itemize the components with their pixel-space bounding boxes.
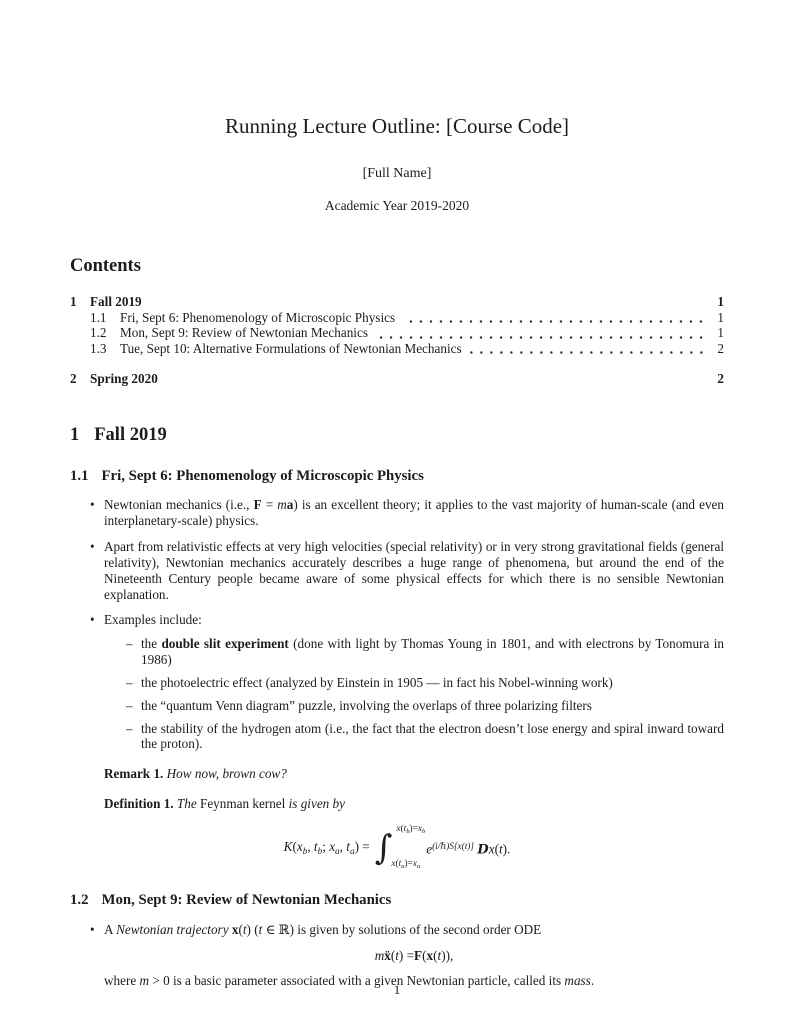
dash-icon: – bbox=[126, 675, 141, 691]
feynman-kernel-equation: K(xb, tb; xa, ta) = ∫ x(tb)=xb x(ta)=xa … bbox=[70, 824, 724, 871]
list-item: – the photoelectric effect (analyzed by … bbox=[126, 675, 724, 691]
subsection-title: Fri, Sept 6: Phenomenology of Microscopi… bbox=[102, 468, 424, 484]
toc-entry-1-3: 1.3 Tue, Sept 10: Alternative Formulatio… bbox=[90, 341, 724, 356]
subsection-number: 1.1 bbox=[70, 468, 89, 484]
dash-icon: – bbox=[126, 721, 141, 753]
subsection-heading-1-1: 1.1Fri, Sept 6: Phenomenology of Microsc… bbox=[70, 468, 724, 486]
toc-entry-number: 2 bbox=[70, 371, 90, 386]
toc-entry-page: 2 bbox=[714, 371, 724, 386]
integral-limits: x(tb)=xb x(ta)=xa bbox=[393, 824, 422, 871]
list-item: • Examples include: – the double slit ex… bbox=[70, 612, 724, 752]
dash-item-text: the photoelectric effect (analyzed by Ei… bbox=[141, 675, 724, 691]
dash-sublist: – the double slit experiment (done with … bbox=[126, 636, 724, 752]
toc-entry-number: 1.3 bbox=[90, 341, 120, 356]
bullet-text-lead: Examples include: bbox=[104, 612, 724, 628]
dash-icon: – bbox=[126, 698, 141, 714]
document-title: Running Lecture Outline: [Course Code] bbox=[70, 114, 724, 139]
document-author: [Full Name] bbox=[70, 166, 724, 183]
toc-entry-title: Spring 2020 bbox=[90, 371, 158, 386]
integral-upper-limit: x(tb)=xb bbox=[396, 824, 425, 836]
bullet-text: Examples include: – the double slit expe… bbox=[104, 612, 724, 752]
remark-paragraph: Remark 1. How now, brown cow? bbox=[104, 766, 724, 782]
section-number: 1 bbox=[70, 425, 79, 445]
document-page: Running Lecture Outline: [Course Code] [… bbox=[0, 0, 794, 1028]
bullet-list-1-1: • Newtonian mechanics (i.e., F = ma) is … bbox=[70, 497, 724, 752]
toc-leader-dots bbox=[470, 351, 706, 354]
bullet-icon: • bbox=[90, 612, 104, 752]
contents-heading: Contents bbox=[70, 255, 724, 277]
toc-entry-number: 1.1 bbox=[90, 310, 120, 325]
bullet-list-1-2: • A Newtonian trajectory x(t) (t ∈ ℝ) is… bbox=[70, 922, 724, 990]
bullet-icon: • bbox=[90, 539, 104, 602]
subsection-number: 1.2 bbox=[70, 892, 89, 908]
bullet-text: Apart from relativistic effects at very … bbox=[104, 539, 724, 602]
toc-leader bbox=[166, 381, 706, 384]
list-item: – the stability of the hydrogen atom (i.… bbox=[126, 721, 724, 753]
toc-leader-dots bbox=[403, 320, 706, 323]
list-item: • A Newtonian trajectory x(t) (t ∈ ℝ) is… bbox=[70, 922, 724, 990]
integral-icon: ∫ bbox=[375, 831, 393, 865]
section-heading-fall-2019: 1Fall 2019 bbox=[70, 424, 724, 446]
contents-list: 1 Fall 2019 1 1.1 Fri, Sept 6: Phenomeno… bbox=[70, 294, 724, 386]
toc-entry-title: Tue, Sept 10: Alternative Formulations o… bbox=[120, 341, 462, 356]
toc-entry-title: Fall 2019 bbox=[90, 294, 142, 309]
integral-lower-limit: x(ta)=xa bbox=[391, 859, 420, 871]
bullet-icon: • bbox=[90, 497, 104, 529]
dash-icon: – bbox=[126, 636, 141, 668]
table-of-contents: Contents 1 Fall 2019 1 1.1 Fri, Sept 6: … bbox=[70, 255, 724, 386]
toc-entry-number: 1 bbox=[70, 294, 90, 309]
newton-ode-equation: m ẍ(t) = F(x(t)), bbox=[104, 948, 724, 964]
equation-lhs: K(xb, tb; xa, ta) = bbox=[284, 839, 370, 857]
bullet-text: Newtonian mechanics (i.e., F = ma) is an… bbox=[104, 497, 724, 529]
bullet-text: A Newtonian trajectory x(t) (t ∈ ℝ) is g… bbox=[104, 922, 724, 990]
toc-leader-dots bbox=[376, 336, 706, 339]
list-item: • Apart from relativistic effects at ver… bbox=[70, 539, 724, 602]
equation-integrand: e(i/ℏ)S[x(t)] Dx(t). bbox=[426, 841, 510, 858]
bullet-icon: • bbox=[90, 922, 104, 990]
toc-entry-number: 1.2 bbox=[90, 325, 120, 340]
page-footer: 1 bbox=[0, 982, 794, 998]
toc-entry-page: 1 bbox=[714, 294, 724, 309]
dash-item-text: the stability of the hydrogen atom (i.e.… bbox=[141, 721, 724, 753]
toc-entry-page: 2 bbox=[714, 341, 724, 356]
dash-item-text: the double slit experiment (done with li… bbox=[141, 636, 724, 668]
list-item: – the “quantum Venn diagram” puzzle, inv… bbox=[126, 698, 724, 714]
page-number: 1 bbox=[394, 982, 401, 997]
toc-entry-title: Fri, Sept 6: Phenomenology of Microscopi… bbox=[120, 310, 395, 325]
document-body: 1Fall 2019 1.1Fri, Sept 6: Phenomenology… bbox=[70, 424, 724, 989]
toc-entry-page: 1 bbox=[714, 310, 724, 325]
bullet-text-lead: A Newtonian trajectory x(t) (t ∈ ℝ) is g… bbox=[104, 922, 724, 938]
document-header: Running Lecture Outline: [Course Code] [… bbox=[70, 0, 724, 214]
list-item: • Newtonian mechanics (i.e., F = ma) is … bbox=[70, 497, 724, 529]
toc-entry-title: Mon, Sept 9: Review of Newtonian Mechani… bbox=[120, 325, 368, 340]
toc-leader bbox=[150, 305, 706, 308]
toc-entry-fall-2019: 1 Fall 2019 1 bbox=[70, 294, 724, 309]
list-item: – the double slit experiment (done with … bbox=[126, 636, 724, 668]
document-date: Academic Year 2019-2020 bbox=[70, 198, 724, 214]
toc-entry-page: 1 bbox=[714, 325, 724, 340]
toc-entry-1-2: 1.2 Mon, Sept 9: Review of Newtonian Mec… bbox=[90, 325, 724, 340]
toc-entry-spring-2020: 2 Spring 2020 2 bbox=[70, 371, 724, 386]
integral-group: ∫ x(tb)=xb x(ta)=xa bbox=[375, 824, 423, 871]
subsection-title: Mon, Sept 9: Review of Newtonian Mechani… bbox=[102, 892, 392, 908]
definition-paragraph: Definition 1. The Feynman kernel is give… bbox=[104, 796, 724, 812]
section-title: Fall 2019 bbox=[94, 425, 166, 445]
subsection-heading-1-2: 1.2Mon, Sept 9: Review of Newtonian Mech… bbox=[70, 892, 724, 910]
dash-item-text: the “quantum Venn diagram” puzzle, invol… bbox=[141, 698, 724, 714]
toc-entry-1-1: 1.1 Fri, Sept 6: Phenomenology of Micros… bbox=[90, 310, 724, 325]
